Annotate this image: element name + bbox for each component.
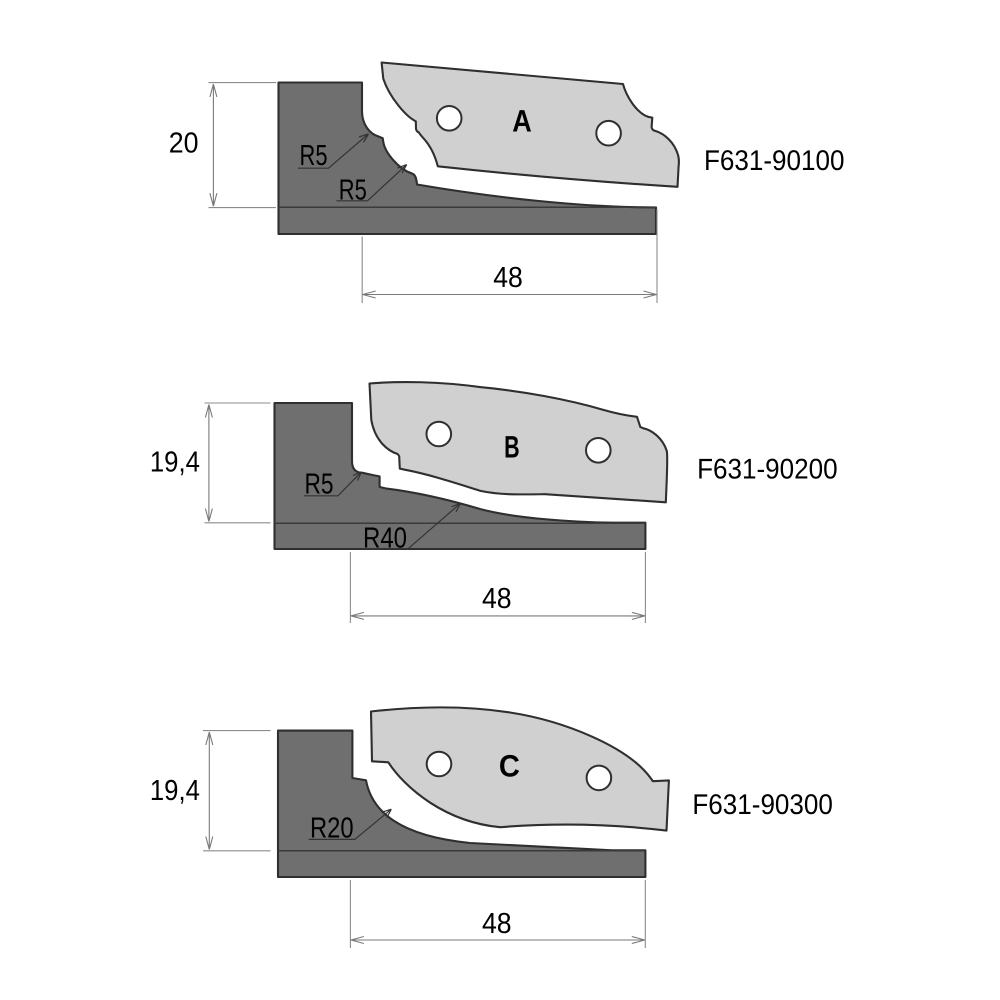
svg-text:F631-90100: F631-90100: [704, 145, 845, 177]
svg-text:F631-90300: F631-90300: [692, 789, 833, 821]
svg-text:20: 20: [169, 128, 199, 160]
svg-text:48: 48: [482, 908, 512, 940]
svg-text:R5: R5: [339, 175, 367, 207]
svg-text:C: C: [499, 749, 520, 784]
svg-text:R40: R40: [363, 523, 407, 555]
svg-text:A: A: [512, 103, 532, 138]
svg-text:B: B: [504, 430, 520, 465]
svg-text:19,4: 19,4: [150, 775, 200, 807]
svg-text:R5: R5: [300, 140, 328, 172]
svg-text:48: 48: [493, 262, 523, 294]
svg-text:19,4: 19,4: [150, 447, 200, 479]
svg-text:48: 48: [482, 583, 512, 615]
svg-text:F631-90200: F631-90200: [697, 453, 838, 485]
